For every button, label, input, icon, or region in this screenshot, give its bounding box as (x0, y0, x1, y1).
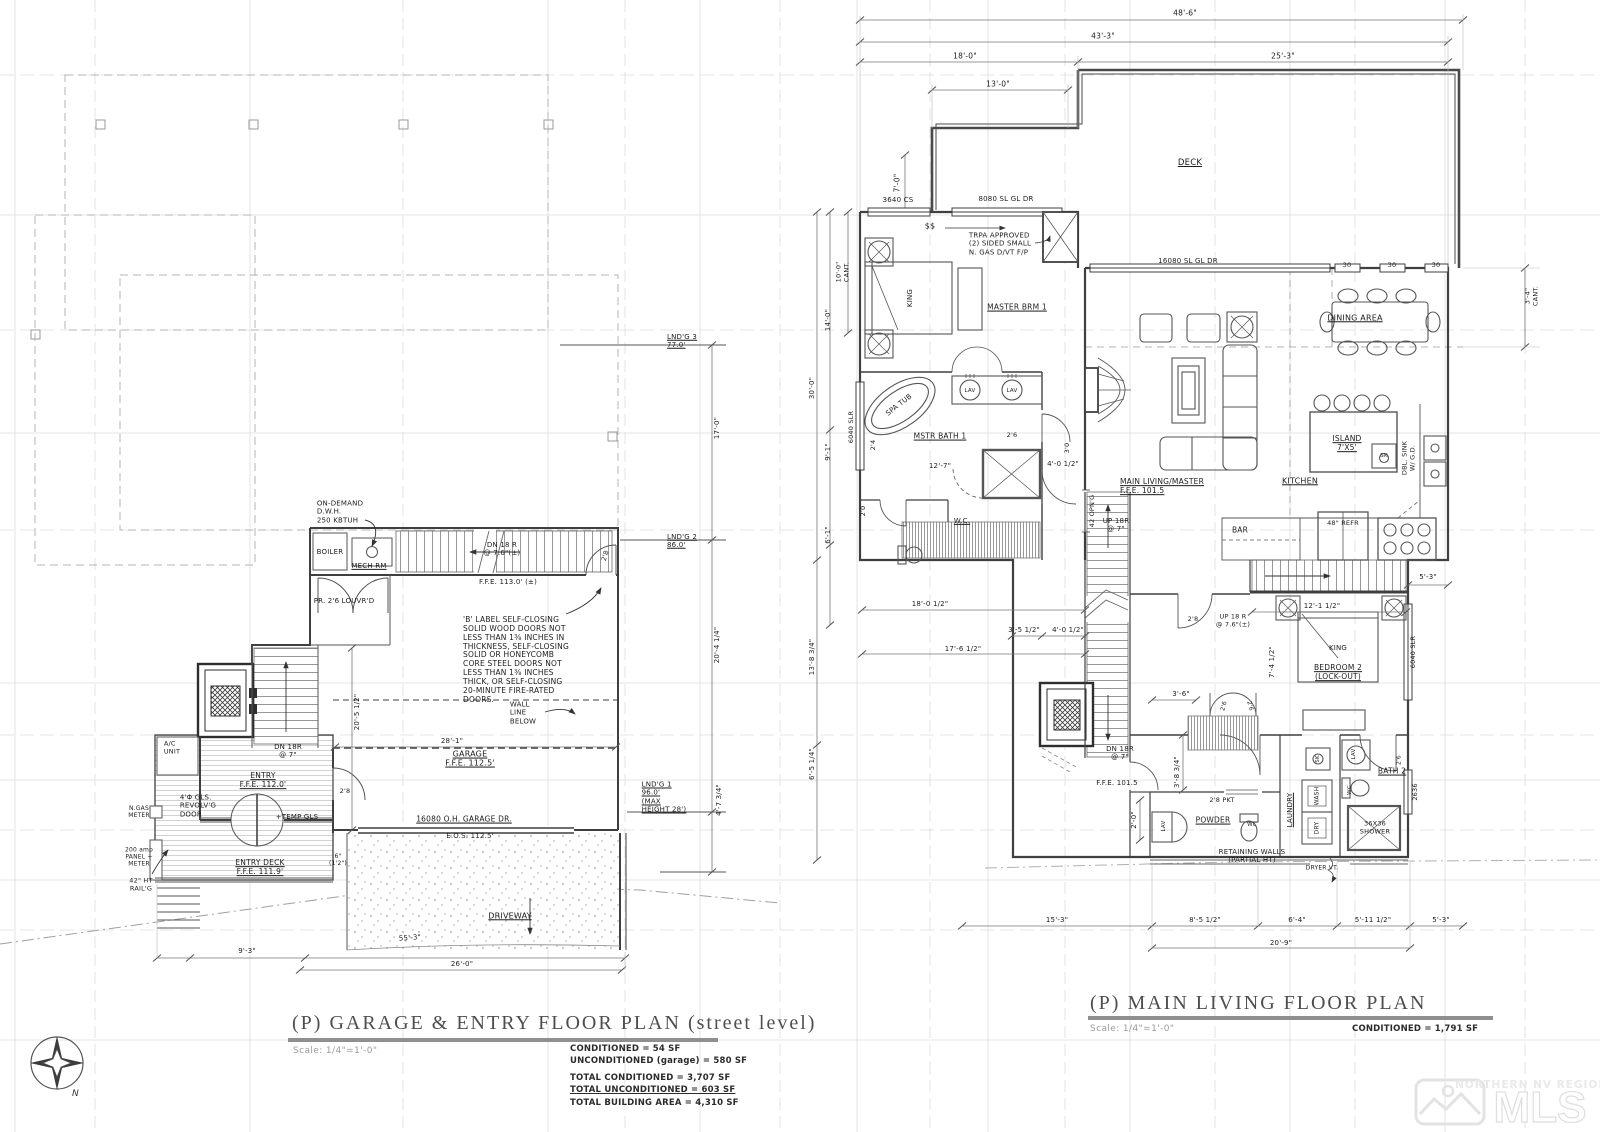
left-area-conditioned: CONDITIONED = 54 SF (570, 1044, 681, 1054)
garage-entry-plan (150, 342, 726, 974)
right-plan-title: (P) MAIN LIVING FLOOR PLAN (1090, 992, 1426, 1015)
left-plan-title: (P) GARAGE & ENTRY FLOOR PLAN (street le… (292, 1012, 816, 1035)
right-plan-scale: Scale: 1/4"=1'-0" (1090, 1024, 1174, 1034)
left-total-building: TOTAL BUILDING AREA = 4,310 SF (570, 1098, 739, 1108)
compass-north-label: N (72, 1089, 79, 1099)
mountain-icon (1420, 1094, 1480, 1114)
left-plan-scale: Scale: 1/4"=1'-0" (293, 1046, 377, 1056)
floor-plan-drawing: N NORTHERN NV REGIONAL MLS (0, 0, 1600, 1132)
left-area-unconditioned: UNCONDITIONED (garage) = 580 SF (570, 1056, 747, 1066)
main-living-plan (813, 14, 1540, 952)
architectural-sheet: N NORTHERN NV REGIONAL MLS ON-DEMAND D.W… (0, 0, 1600, 1132)
sun-icon (1443, 1086, 1453, 1096)
left-total-unconditioned: TOTAL UNCONDITIONED = 603 SF (570, 1085, 735, 1095)
watermark-brand-text: MLS (1494, 1083, 1587, 1132)
right-plan-conditioned: CONDITIONED = 1,791 SF (1352, 1023, 1478, 1035)
right-title-bar (1088, 1016, 1493, 1020)
left-total-conditioned: TOTAL CONDITIONED = 3,707 SF (570, 1073, 731, 1083)
left-title-bar (288, 1038, 718, 1042)
compass-rose: N (30, 1036, 84, 1099)
left-plan-totals: TOTAL CONDITIONED = 3,707 SFTOTAL UNCOND… (570, 1072, 739, 1109)
mls-watermark: NORTHERN NV REGIONAL MLS (1416, 1079, 1600, 1132)
left-plan-areas: CONDITIONED = 54 SFUNCONDITIONED (garage… (570, 1043, 747, 1068)
